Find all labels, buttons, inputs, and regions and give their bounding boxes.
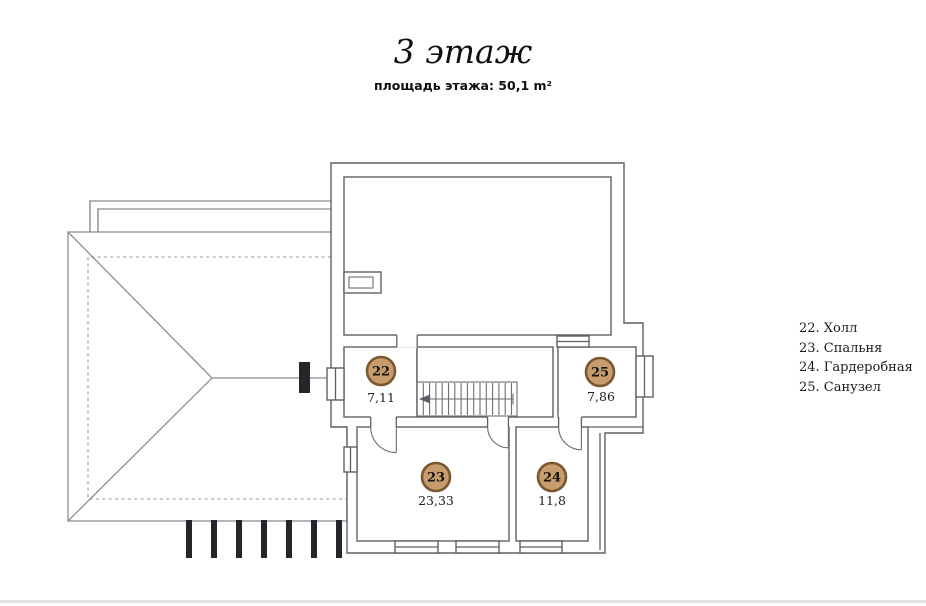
floor-plan-drawing: 22 7,11 25 7,86 23 23,33 24 11,8 xyxy=(0,0,926,606)
legend-item: 24. Гардеробная xyxy=(799,358,913,378)
window-bedroom-left xyxy=(344,447,357,472)
window-bedroom-bottom-2 xyxy=(456,541,499,553)
svg-text:22: 22 xyxy=(372,365,390,380)
room-attic xyxy=(344,177,611,335)
svg-text:24: 24 xyxy=(543,471,561,486)
floor-plan-page: 3 этаж площадь этажа: 50,1 m² xyxy=(0,0,926,606)
room-badge-25: 25 7,86 xyxy=(586,358,615,404)
room-area-25: 7,86 xyxy=(587,389,615,404)
eaves-step-outer xyxy=(90,201,331,232)
chimney xyxy=(299,362,310,393)
roof-plan xyxy=(68,201,347,558)
building: 22 7,11 25 7,86 23 23,33 24 11,8 xyxy=(327,163,653,553)
window-bathroom-right xyxy=(636,356,653,397)
room-area-23: 23,33 xyxy=(418,493,454,508)
stair-ceiling-opening xyxy=(397,333,417,347)
room-badge-22: 22 7,11 xyxy=(367,357,395,405)
room-area-24: 11,8 xyxy=(538,493,566,508)
room-badge-23: 23 23,33 xyxy=(418,463,454,508)
window-hall-left xyxy=(327,368,344,400)
bottom-divider xyxy=(0,600,926,603)
svg-text:23: 23 xyxy=(427,471,445,486)
eaves-step-inner xyxy=(98,209,331,232)
room-area-22: 7,11 xyxy=(367,390,395,405)
room-badge-24: 24 11,8 xyxy=(538,463,566,508)
legend-item: 22. Холл xyxy=(799,319,913,339)
wall-shaft xyxy=(344,272,381,293)
svg-text:25: 25 xyxy=(591,366,609,381)
terrace-ticks xyxy=(186,520,342,558)
window-bedroom-bottom-1 xyxy=(395,541,438,553)
legend-item: 25. Санузел xyxy=(799,378,913,398)
room-legend: 22. Холл 23. Спальня 24. Гардеробная 25.… xyxy=(799,319,913,397)
window-bathroom-top xyxy=(557,336,589,347)
legend-item: 23. Спальня xyxy=(799,339,913,359)
window-wardrobe-bottom xyxy=(520,541,562,553)
